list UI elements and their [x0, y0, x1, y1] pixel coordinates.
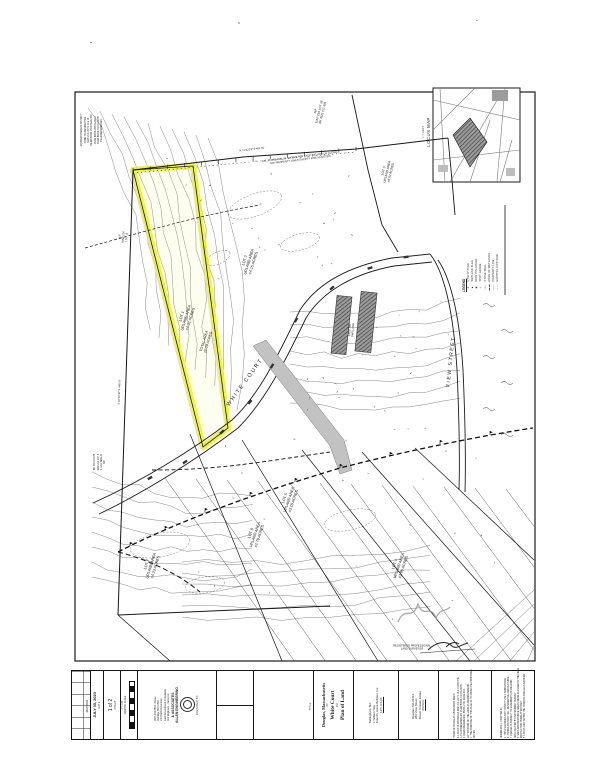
revisions-cell: REVISIONS: [72, 671, 91, 739]
map-label: LOT 4UPLAND AREA±3.96 ACRES: [389, 551, 410, 581]
legend: – –EXISTING CONTOUR——PROPERTY LINE▬ ▬EDG…: [458, 206, 504, 294]
scan-noise: [90, 20, 478, 43]
prepared-by-cell: PREPARED BY: ALLEN ENGINEERING & ASSOCIA…: [138, 671, 217, 739]
map-label: S 18°22'40" E 448.75': [117, 379, 122, 405]
corner-references-block: PLAN REFERENCES:PLAN BOOK 310 PLAN 55PLA…: [80, 94, 106, 166]
scale-label: GRAPHIC SCALE: [125, 696, 128, 715]
title-label: TITLE:: [309, 702, 312, 711]
notes-cell-1: NOTES:1. THE PURPOSE OF THIS PLAN IS TO …: [439, 671, 492, 739]
applicant-lines: Country Home Builders, Inc.1 William Way…: [369, 687, 379, 723]
locus-map-title: LOCUS MAP: [426, 117, 431, 146]
firm-name-1: ALLEN ENGINEERING: [175, 687, 179, 723]
scale-cell: GRAPHIC SCALE 1" = 100': [121, 671, 138, 739]
sheet-cell: SHEET 1 of 2: [104, 671, 121, 739]
notes-cell-2: 5. LOCUS LIES WITHIN THE TOWN OF DOUGLAS…: [492, 671, 536, 739]
map-label: ALL STONE WALLS SHOWN ARE EXISTING AND L…: [262, 150, 338, 166]
dash-legend-icon: – –: [496, 283, 500, 292]
owner-cell: OWNER: Mount Tomash Estate280 View Stree…: [399, 671, 439, 739]
date-label: DATE: [98, 701, 101, 708]
map-label: N 71°42'18" E 402.55': [239, 145, 265, 152]
map-label: LOT 6UPLAND AREA±2.79 ACRES: [245, 520, 266, 550]
map-label: LOT 2UPLAND AREA±4.15 ACRES: [239, 247, 259, 277]
pencil-scrawl: [398, 604, 450, 622]
title-block: REVISIONS DATE JULY 05, 2023 SHEET 1 of …: [71, 670, 535, 740]
plan-title-cell: Plan of Land For White Court IN Douglas,…: [314, 671, 354, 739]
highlighted-parcel: [133, 166, 228, 447]
gravel-driveway: [253, 340, 352, 474]
scanned-plan-page: LOT 1UPLAND AREA±4.31 ACRESTOTAL AREA±5.…: [0, 0, 603, 768]
legend-item: – –EXISTING CONTOUR: [496, 253, 500, 292]
existing-buildings: [331, 291, 377, 354]
plan-title-line1: Plan of Land: [340, 690, 346, 720]
legend-items: – –EXISTING CONTOUR——PROPERTY LINE▬ ▬EDG…: [467, 253, 499, 292]
sheet-label: SHEET: [114, 700, 117, 709]
graphic-scale-bar: [129, 681, 135, 729]
abutter-note-block: N/FJ. & M. WALLISMAP 210 LOT 9BK 3301 PG…: [94, 436, 108, 488]
applicant-label: APPLICANT:: [380, 697, 383, 713]
map-label: N/FMAP 210 LOT 18BK 4521 PG 301: [311, 99, 328, 124]
map-label: VIEW STREET: [445, 336, 456, 388]
firm-address: Civil Engineers - SurveyorsLand Developm…: [155, 689, 172, 721]
stamp-cells: [217, 671, 254, 739]
notes-column-1: NOTES:1. THE PURPOSE OF THIS PLAN IS TO …: [439, 669, 493, 739]
map-label: LOT 5UPLAND AREA±3.18 ACRES: [279, 485, 300, 515]
hatch-lines: [165, 478, 603, 662]
corner-references-text: PLAN REFERENCES:PLAN BOOK 310 PLAN 55PLA…: [80, 94, 106, 166]
map-label: EXISTINGDWELLING: [347, 323, 355, 338]
road-lines: [93, 254, 465, 514]
locus-map-label: LOCUS MAP 1" = 1000'±: [421, 106, 433, 158]
map-label: WHITE COURT: [226, 357, 265, 407]
blank-stamp-area: TITLE:: [254, 671, 314, 739]
wetland-edge-lines: [118, 428, 533, 592]
map-label: REGISTERED PROFESSIONALLAND SURVEYOR: [393, 643, 431, 650]
applicant-cell: APPLICANT: Country Home Builders, Inc.1 …: [354, 671, 399, 739]
owner-lines: Mount Tomash Estate280 View StreetDougla…: [412, 691, 422, 719]
notes-column-2: 5. LOCUS LIES WITHIN THE TOWN OF DOUGLAS…: [492, 669, 537, 739]
revisions-label: REVISIONS: [87, 700, 90, 713]
date-cell: DATE JULY 05, 2023: [91, 671, 104, 739]
owner-label: OWNER:: [422, 699, 425, 710]
map-label: LOT 7UPLAND AREA±4.23 ACRES: [141, 551, 161, 581]
map-label: LOT 3UPLAND AREA±6.02 ACRES: [379, 159, 396, 184]
stamp-cell-divider: [217, 705, 253, 706]
surveyor-seal-icon: [180, 698, 195, 713]
abutter-note-text: N/FJ. & M. WALLISMAP 210 LOT 9BK 3301 PG…: [94, 436, 108, 488]
map-label: N/FMAP 210LOT 11: [117, 230, 129, 243]
legend-title: LEGEND: [462, 279, 466, 292]
prepared-by-label: PREPARED BY:: [196, 695, 199, 716]
